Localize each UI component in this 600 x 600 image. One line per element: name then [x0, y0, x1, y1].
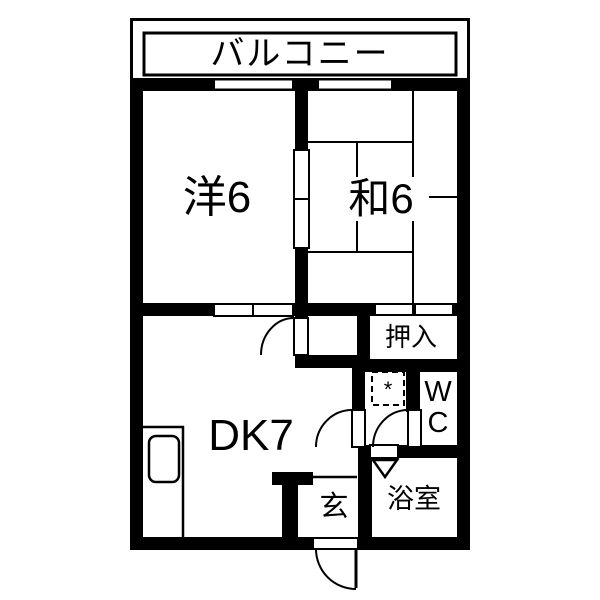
bath-folding-door-icon	[373, 460, 397, 477]
dining-kitchen-label: DK7	[181, 410, 321, 462]
washer-symbol: *	[384, 377, 393, 402]
western-room-label: 洋6	[157, 172, 277, 224]
bathroom-label: 浴室	[372, 484, 456, 514]
washer-space-icon: *	[372, 372, 404, 405]
kitchen-counter-icon	[143, 427, 183, 537]
wc-label-line2: C	[413, 408, 463, 439]
japanese-room-label: 和6	[333, 177, 429, 221]
entrance-label: 玄	[309, 491, 359, 523]
closet-label: 押入	[366, 322, 456, 352]
floor-plan: * バルコニー 洋6 和6 押入 DK7 W C 玄 浴室	[0, 0, 600, 600]
floor-plan-drawing: *	[0, 0, 600, 600]
wc-label-line1: W	[413, 377, 463, 408]
balcony-label: バルコニー	[150, 33, 450, 75]
wc-label: W C	[413, 377, 463, 441]
